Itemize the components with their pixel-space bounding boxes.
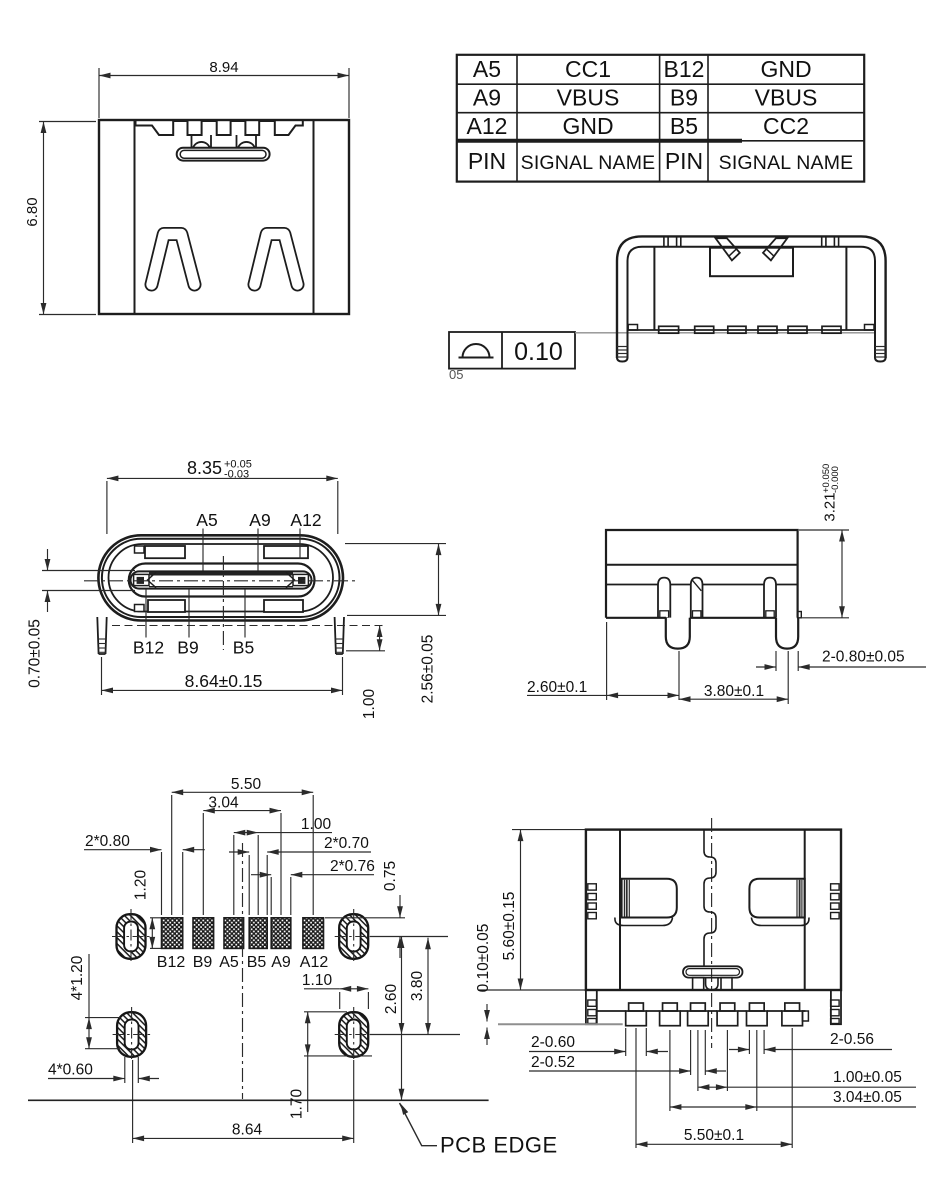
svg-text:A5: A5 [219,954,239,971]
svg-text:PIN: PIN [468,148,506,174]
svg-text:A12: A12 [290,510,321,530]
svg-text:2-0.56: 2-0.56 [830,1031,874,1048]
svg-text:B5: B5 [233,638,254,658]
svg-text:8.64: 8.64 [232,1122,263,1139]
svg-text:1.00±0.05: 1.00±0.05 [833,1069,902,1086]
svg-text:3.80±0.1: 3.80±0.1 [704,683,764,700]
svg-text:3.04±0.05: 3.04±0.05 [833,1089,902,1106]
svg-text:CC2: CC2 [763,113,809,139]
svg-text:PIN: PIN [665,148,703,174]
svg-text:1.00: 1.00 [361,689,378,720]
svg-text:3.04: 3.04 [208,795,239,812]
svg-text:4*1.20: 4*1.20 [69,955,86,1000]
svg-text:-0.03: -0.03 [224,469,249,481]
svg-text:5.50: 5.50 [231,776,262,793]
svg-text:B9: B9 [177,638,198,658]
svg-text:GND: GND [760,56,811,82]
svg-text:A12: A12 [300,954,329,971]
svg-text:2.56±0.05: 2.56±0.05 [420,635,437,704]
svg-text:B9: B9 [193,954,213,971]
svg-text:A5: A5 [473,56,501,82]
svg-text:8.94: 8.94 [209,59,238,76]
svg-text:8.64±0.15: 8.64±0.15 [185,671,263,691]
svg-text:A5: A5 [196,510,217,530]
svg-text:05: 05 [449,367,463,382]
svg-text:1.20: 1.20 [133,870,150,901]
svg-text:2-0.52: 2-0.52 [531,1054,575,1071]
svg-text:5.60±0.15: 5.60±0.15 [501,892,518,961]
svg-text:2*0.76: 2*0.76 [330,858,375,875]
svg-text:2-0.60: 2-0.60 [531,1034,575,1051]
svg-text:B12: B12 [157,954,186,971]
svg-text:VBUS: VBUS [557,85,620,111]
svg-text:2*0.70: 2*0.70 [324,835,369,852]
svg-text:B5: B5 [247,954,267,971]
svg-text:SIGNAL NAME: SIGNAL NAME [521,152,656,174]
svg-text:A9: A9 [271,954,291,971]
svg-text:2.60: 2.60 [383,984,400,1015]
svg-text:5.50±0.1: 5.50±0.1 [684,1127,744,1144]
svg-text:1.00: 1.00 [301,816,332,833]
svg-text:0.10: 0.10 [514,338,563,366]
svg-text:0.70±0.05: 0.70±0.05 [27,619,44,688]
svg-text:SIGNAL NAME: SIGNAL NAME [719,152,854,174]
svg-text:VBUS: VBUS [755,85,818,111]
svg-text:2.60±0.1: 2.60±0.1 [527,679,587,696]
svg-text:B12: B12 [664,56,705,82]
svg-text:0.10±0.05: 0.10±0.05 [475,924,492,993]
svg-text:CC1: CC1 [565,56,611,82]
svg-text:B5: B5 [670,113,698,139]
svg-text:A12: A12 [467,113,508,139]
svg-text:A9: A9 [249,510,270,530]
svg-text:B9: B9 [670,85,698,111]
svg-text:B12: B12 [133,638,164,658]
svg-text:2*0.80: 2*0.80 [85,833,130,850]
svg-text:1.10: 1.10 [302,972,333,989]
svg-text:PCB EDGE: PCB EDGE [440,1133,558,1158]
svg-text:8.35: 8.35 [187,458,222,478]
svg-text:3.21: 3.21 [822,492,839,521]
svg-text:GND: GND [562,113,613,139]
svg-text:A9: A9 [473,85,501,111]
svg-text:4*0.60: 4*0.60 [48,1062,93,1079]
svg-text:1.70: 1.70 [289,1089,306,1120]
svg-text:-0.000: -0.000 [830,466,841,493]
svg-text:3.80: 3.80 [409,971,426,1002]
svg-text:0.75: 0.75 [382,861,399,891]
svg-text:2-0.80±0.05: 2-0.80±0.05 [822,649,905,666]
svg-text:6.80: 6.80 [24,197,41,226]
